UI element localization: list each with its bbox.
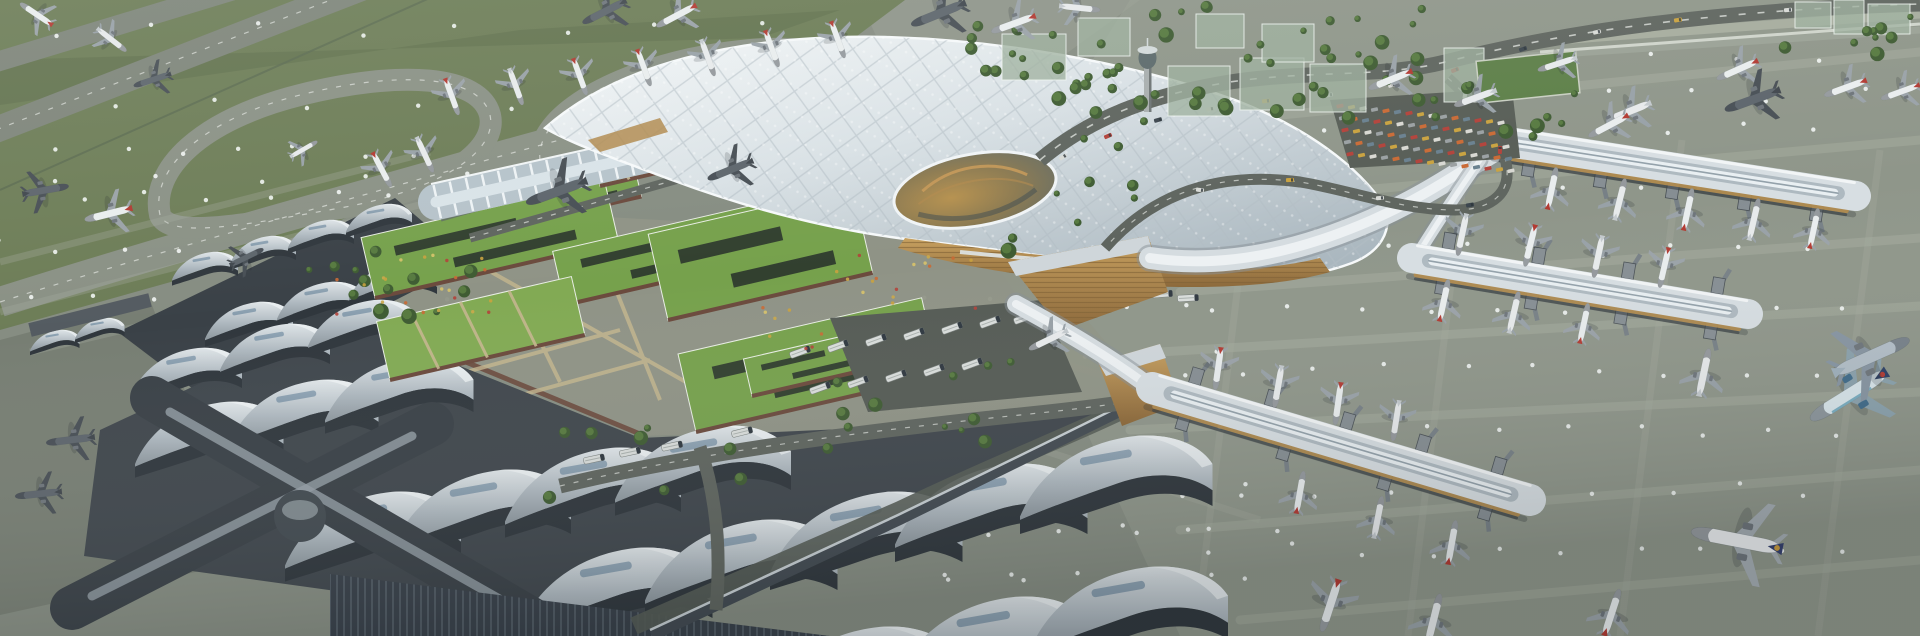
apron-light xyxy=(153,174,157,178)
flower-bed-dot xyxy=(923,261,926,264)
apron-light xyxy=(1425,424,1429,428)
apron-light xyxy=(1738,481,1742,485)
tree xyxy=(1080,135,1088,143)
tree xyxy=(1256,41,1264,49)
tree xyxy=(644,424,651,431)
flower-bed-dot xyxy=(423,255,426,258)
car xyxy=(1286,178,1294,182)
apron-light xyxy=(53,250,57,254)
tree xyxy=(352,267,359,274)
tree xyxy=(1084,177,1095,188)
flower-bed-dot xyxy=(480,257,483,260)
apron-light xyxy=(1429,310,1433,314)
tree xyxy=(1355,51,1361,57)
apron-light xyxy=(1840,550,1844,554)
apron-light xyxy=(361,33,365,37)
flower-bed-dot xyxy=(768,335,771,338)
tree xyxy=(659,485,669,495)
apron-light xyxy=(1498,547,1502,551)
apron-light xyxy=(1666,131,1670,135)
apron-light xyxy=(760,21,764,25)
tree xyxy=(1412,93,1426,107)
gate-box xyxy=(1532,247,1546,265)
apron-light xyxy=(452,24,456,28)
apron-light xyxy=(1766,428,1770,432)
tree xyxy=(1019,55,1026,62)
apron-light xyxy=(1563,310,1567,314)
apron-light xyxy=(127,147,131,151)
tree xyxy=(1090,106,1103,119)
apron-light xyxy=(1701,433,1705,437)
tree xyxy=(1008,233,1017,242)
flower-bed-dot xyxy=(912,263,915,266)
apron-light xyxy=(305,106,309,110)
apron-light xyxy=(177,249,181,253)
apron-light xyxy=(1811,127,1815,131)
tree xyxy=(1354,16,1361,23)
bus xyxy=(1177,294,1198,302)
tree xyxy=(1070,82,1082,94)
airport-rendering-stage xyxy=(0,0,1920,636)
flower-bed-dot xyxy=(969,258,972,261)
tree xyxy=(1907,14,1913,20)
apron-light xyxy=(1432,554,1436,558)
apron-light xyxy=(1322,128,1326,132)
tree xyxy=(1779,41,1792,54)
apron-light xyxy=(181,152,185,156)
tree xyxy=(1270,104,1284,118)
tree xyxy=(724,443,737,456)
tree xyxy=(373,303,389,319)
flower-bed-dot xyxy=(335,312,338,315)
tree xyxy=(585,427,597,439)
apron-light xyxy=(1275,529,1279,533)
apron-light xyxy=(1840,306,1844,310)
apron-light xyxy=(269,196,273,200)
apron-light xyxy=(1121,523,1125,527)
apron-light xyxy=(1310,366,1314,370)
apron-light xyxy=(236,147,240,151)
flower-bed-dot xyxy=(891,301,894,304)
flower-bed-dot xyxy=(437,309,440,312)
apron-light xyxy=(1184,303,1188,307)
apron-light xyxy=(1186,527,1190,531)
tree xyxy=(1149,9,1161,21)
tree xyxy=(1317,87,1328,98)
glass-tower xyxy=(1834,0,1864,34)
apron-light xyxy=(1566,424,1570,428)
tree xyxy=(464,265,477,278)
tree xyxy=(1498,124,1513,139)
tree xyxy=(1300,27,1307,34)
tree xyxy=(1244,54,1253,63)
gate-box xyxy=(1442,232,1456,250)
flower-bed-dot xyxy=(871,279,874,282)
flower-bed-dot xyxy=(927,255,930,258)
flower-bed-dot xyxy=(454,276,457,279)
apron-light xyxy=(1689,88,1693,92)
apron-light xyxy=(1389,490,1393,494)
tree xyxy=(1363,55,1378,70)
apron-light xyxy=(1495,308,1499,312)
apron-light xyxy=(1741,122,1745,126)
apron-light xyxy=(986,533,990,537)
tree xyxy=(348,290,358,300)
apron-light xyxy=(204,198,208,202)
tree xyxy=(1326,16,1335,25)
flower-bed-dot xyxy=(399,258,402,261)
apron-light xyxy=(1640,546,1644,550)
apron-light xyxy=(1360,307,1364,311)
tree xyxy=(1530,118,1545,133)
apron-light xyxy=(1134,531,1138,535)
tree xyxy=(1320,44,1331,55)
tree xyxy=(1084,73,1092,81)
x-pier-hub-roof xyxy=(282,500,318,520)
tower-shaft-shade xyxy=(1149,66,1152,112)
apron-light xyxy=(123,247,127,251)
flower-bed-dot xyxy=(835,270,838,273)
tree xyxy=(634,431,648,445)
apron-light xyxy=(1467,364,1471,368)
tree xyxy=(949,372,958,381)
tree xyxy=(370,246,382,258)
tree xyxy=(1114,142,1123,151)
tree xyxy=(1309,82,1319,92)
tree xyxy=(407,273,419,285)
tree xyxy=(1862,26,1872,36)
tree xyxy=(1872,34,1878,40)
apron-light xyxy=(1009,572,1013,576)
flower-bed-dot xyxy=(875,277,878,280)
tree xyxy=(1886,32,1898,44)
glass-tower xyxy=(1795,2,1831,28)
apron-light xyxy=(1640,424,1644,428)
apron-light xyxy=(1671,491,1675,495)
apron-light xyxy=(652,22,656,26)
flower-bed-dot xyxy=(445,259,448,262)
tree xyxy=(868,398,882,412)
tree xyxy=(1850,39,1858,47)
flower-bed-dot xyxy=(974,306,977,309)
airport-aerial-rendering xyxy=(0,0,1920,636)
apron-light xyxy=(1056,529,1060,533)
car xyxy=(1498,146,1502,154)
tree xyxy=(1410,52,1424,66)
tree xyxy=(1049,31,1057,39)
tree xyxy=(1158,27,1173,42)
tree xyxy=(978,435,992,449)
flower-bed-dot xyxy=(804,347,807,350)
apron-light xyxy=(1382,362,1386,366)
apron-light xyxy=(260,180,264,184)
flower-bed-dot xyxy=(381,300,384,303)
flower-bed-dot xyxy=(453,296,456,299)
apron-light xyxy=(53,179,57,183)
tree xyxy=(959,427,965,433)
tree xyxy=(972,21,983,32)
flower-bed-dot xyxy=(422,311,425,314)
apron-light xyxy=(1243,576,1247,580)
flower-bed-dot xyxy=(788,308,791,311)
flower-bed-dot xyxy=(335,278,338,281)
apron-light xyxy=(1649,52,1653,56)
apron-light xyxy=(1075,571,1079,575)
flower-bed-dot xyxy=(764,311,767,314)
tree xyxy=(1870,47,1884,61)
tree xyxy=(1109,68,1118,77)
tree xyxy=(1571,90,1578,97)
car xyxy=(1784,8,1792,13)
apron-light xyxy=(256,21,260,25)
tree xyxy=(844,423,853,432)
apron-light xyxy=(1241,372,1245,376)
flower-bed-dot xyxy=(951,256,954,259)
flower-bed-dot xyxy=(820,332,823,335)
tree xyxy=(1133,95,1148,110)
apron-light xyxy=(1736,245,1740,249)
tree xyxy=(1418,5,1426,13)
tree xyxy=(1558,120,1565,127)
apron-light xyxy=(1863,87,1867,91)
flower-bed-dot xyxy=(761,306,764,309)
tree xyxy=(1543,113,1551,121)
apron-light xyxy=(149,23,153,27)
apron-light xyxy=(29,295,33,299)
apron-light xyxy=(1239,493,1243,497)
apron-light xyxy=(53,147,57,151)
apron-light xyxy=(1360,553,1364,557)
tree xyxy=(1052,62,1064,74)
tree xyxy=(1292,93,1305,106)
apron-light xyxy=(152,297,156,301)
flower-bed-dot xyxy=(810,345,813,348)
tree xyxy=(458,285,470,297)
glass-building xyxy=(1078,18,1130,56)
tree xyxy=(1529,132,1538,141)
apron-light xyxy=(386,193,390,197)
tree xyxy=(1020,71,1030,81)
apron-light xyxy=(1206,550,1210,554)
tree xyxy=(329,261,339,271)
tree xyxy=(1140,117,1148,125)
apron-light xyxy=(416,103,420,107)
apron-light xyxy=(1817,59,1821,63)
tree xyxy=(383,284,393,294)
car xyxy=(1376,196,1384,201)
tree xyxy=(1009,50,1016,57)
flower-bed-dot xyxy=(773,317,776,320)
tree xyxy=(942,424,948,430)
tree xyxy=(1201,1,1213,13)
tree xyxy=(401,309,416,324)
tree xyxy=(968,413,980,425)
tree xyxy=(543,491,556,504)
apron-light xyxy=(509,107,513,111)
apron-light xyxy=(363,174,367,178)
tree xyxy=(1007,358,1015,366)
tree xyxy=(1108,84,1118,94)
tree xyxy=(1131,194,1138,201)
tree xyxy=(836,407,849,420)
tree xyxy=(1430,96,1438,104)
tree xyxy=(559,427,570,438)
tree xyxy=(1051,91,1066,106)
tree xyxy=(1074,219,1082,227)
glass-building xyxy=(1196,14,1244,48)
flower-bed-dot xyxy=(447,289,450,292)
flower-bed-dot xyxy=(861,291,864,294)
apron-light xyxy=(1668,243,1672,247)
tree xyxy=(822,443,833,454)
flower-bed-dot xyxy=(440,287,443,290)
flower-bed-dot xyxy=(404,301,407,304)
apron-light xyxy=(142,190,146,194)
flower-bed-dot xyxy=(487,311,490,314)
apron-light xyxy=(54,34,58,38)
flower-bed-dot xyxy=(489,299,492,302)
tree xyxy=(1001,243,1017,259)
flower-bed-dot xyxy=(471,310,474,313)
apron-light xyxy=(1834,434,1838,438)
apron-light xyxy=(946,577,950,581)
tree xyxy=(306,267,312,273)
apron-light xyxy=(1207,527,1211,531)
apron-light xyxy=(1530,363,1534,367)
apron-light xyxy=(1290,541,1294,545)
apron-light xyxy=(1497,428,1501,432)
tree xyxy=(1326,53,1336,63)
flower-bed-dot xyxy=(891,295,894,298)
tree xyxy=(1410,21,1417,28)
flower-bed-dot xyxy=(895,288,898,291)
apron-light xyxy=(1801,494,1805,498)
apron-light xyxy=(1558,551,1562,555)
tree xyxy=(1219,101,1234,116)
tree xyxy=(1189,97,1202,110)
tree xyxy=(1375,35,1390,50)
tree xyxy=(1151,90,1160,99)
tree xyxy=(1054,190,1060,196)
apron-light xyxy=(1774,306,1778,310)
apron-light xyxy=(942,573,946,577)
tree xyxy=(1178,8,1185,15)
tree xyxy=(833,377,843,387)
flower-bed-dot xyxy=(858,254,861,257)
tree xyxy=(734,472,747,485)
apron-light xyxy=(91,294,95,298)
apron-light xyxy=(1243,482,1247,486)
tower-cab-roof xyxy=(1138,46,1158,54)
apron-light xyxy=(1597,369,1601,373)
apron-light xyxy=(1698,546,1702,550)
tree xyxy=(1431,112,1440,121)
apron-light xyxy=(212,98,216,102)
gate-box xyxy=(1621,262,1635,280)
apron-light xyxy=(1590,492,1594,496)
apron-light xyxy=(1607,88,1611,92)
apron-light xyxy=(1815,374,1819,378)
apron-light xyxy=(1465,242,1469,246)
apron-light xyxy=(566,31,570,35)
tree xyxy=(1127,180,1139,192)
flower-bed-dot xyxy=(846,278,849,281)
apron-light xyxy=(1285,304,1289,308)
flower-bed-dot xyxy=(928,264,931,267)
apron-light xyxy=(1021,578,1025,582)
gate-box xyxy=(1711,277,1725,295)
apron-light xyxy=(1210,308,1214,312)
flower-bed-dot xyxy=(362,283,365,286)
tree xyxy=(1097,39,1106,48)
flower-bed-dot xyxy=(483,268,486,271)
apron-light xyxy=(337,190,341,194)
apron-light xyxy=(113,104,117,108)
flower-bed-dot xyxy=(431,254,434,257)
apron-light xyxy=(1745,373,1749,377)
apron-light xyxy=(1386,244,1390,248)
flower-bed-dot xyxy=(384,277,387,280)
apron-light xyxy=(1209,573,1213,577)
tree xyxy=(967,33,977,43)
apron-light xyxy=(1661,374,1665,378)
tree xyxy=(984,361,992,369)
tree xyxy=(965,43,977,55)
apron-light xyxy=(83,197,87,201)
apron-light xyxy=(1183,373,1187,377)
tree xyxy=(1266,59,1274,67)
tree xyxy=(1342,111,1356,125)
apron-light xyxy=(1639,185,1643,189)
tree xyxy=(980,65,992,77)
